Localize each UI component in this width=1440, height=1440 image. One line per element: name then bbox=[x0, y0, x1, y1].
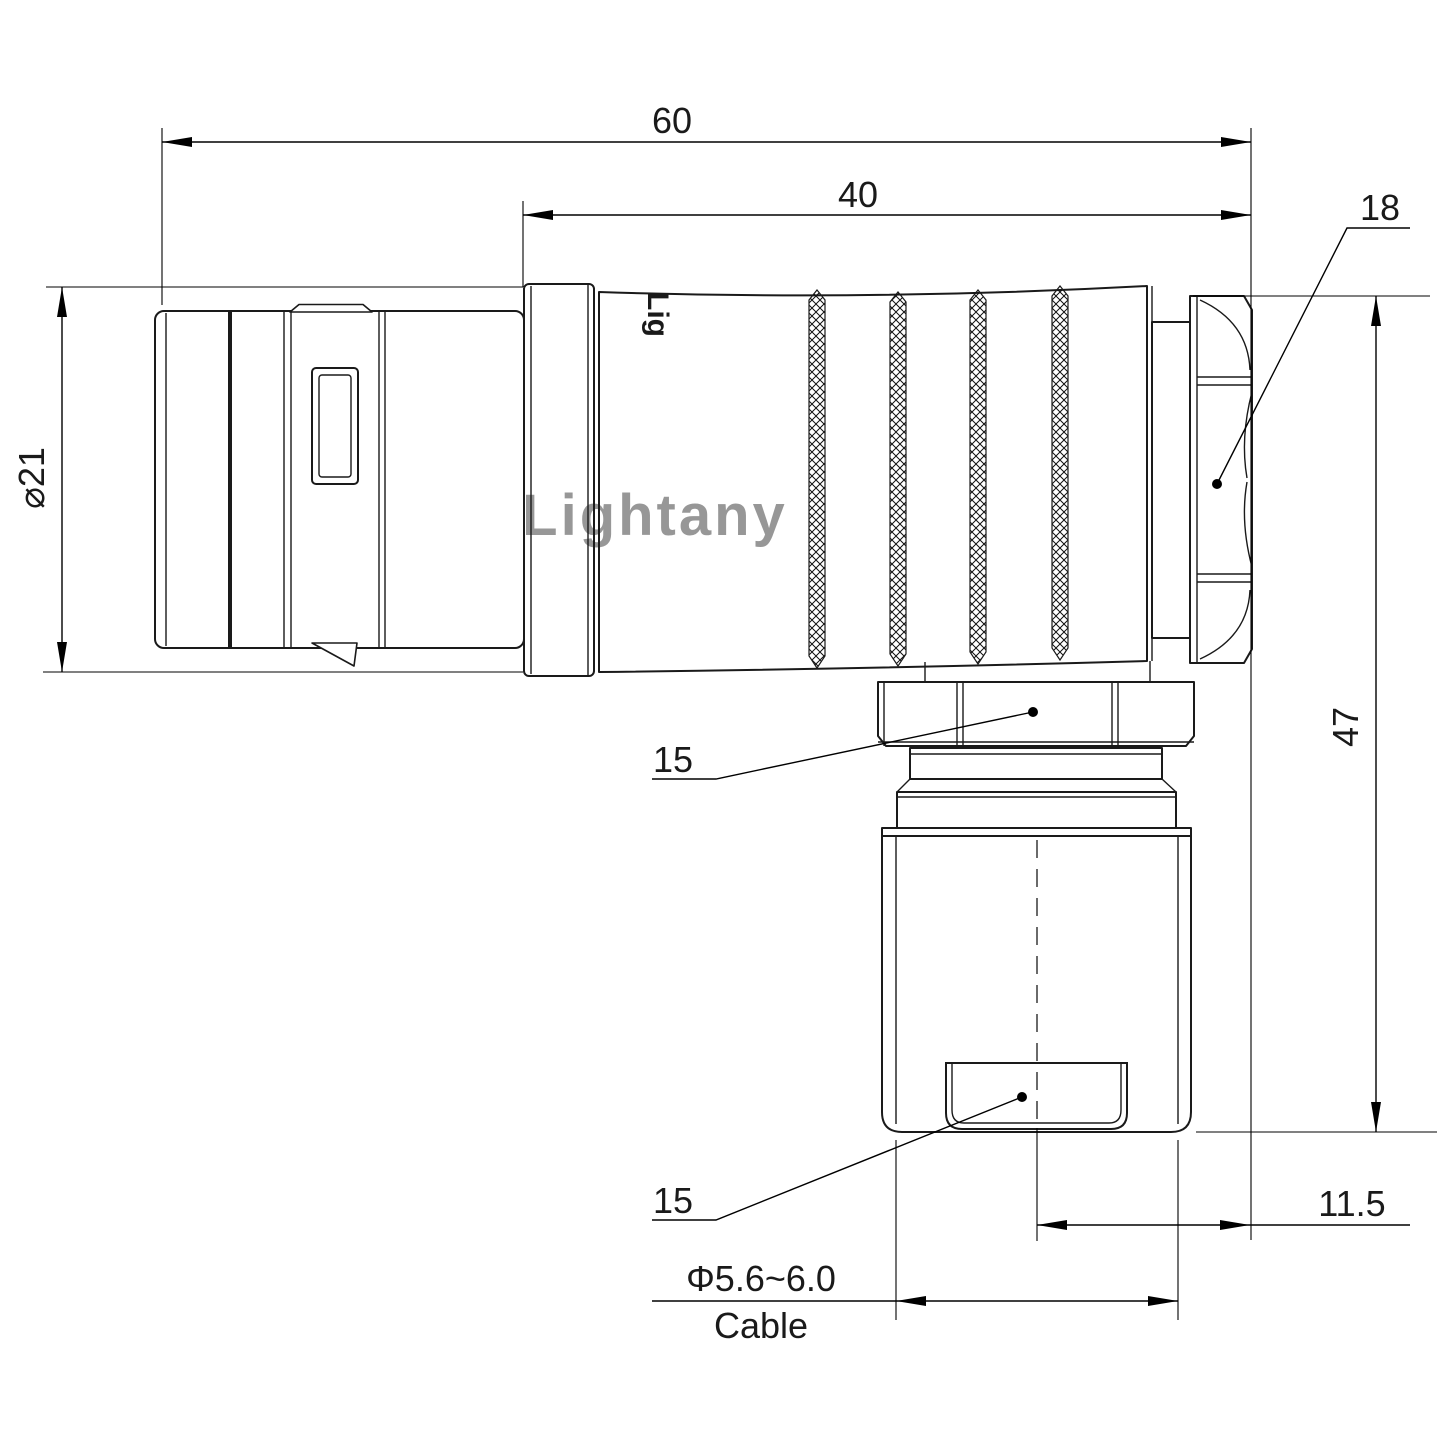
arrow-40-left bbox=[523, 210, 553, 220]
cable-tube bbox=[882, 836, 1191, 1132]
flare-edges bbox=[897, 779, 1176, 792]
connector-body: Lig bbox=[155, 284, 1252, 1132]
arrow-d21-bottom bbox=[57, 642, 67, 672]
arrow-115-right bbox=[1220, 1220, 1250, 1230]
neck bbox=[1152, 322, 1190, 638]
dimensions: 60 40 ⌀21 47 1 bbox=[11, 100, 1437, 1346]
dimension-rear-length: 40 bbox=[523, 174, 1251, 287]
knurl-band-2 bbox=[890, 292, 906, 666]
dim-60-label: 60 bbox=[652, 100, 692, 141]
dim-40-label: 40 bbox=[838, 174, 878, 215]
dim-cable-word-label: Cable bbox=[714, 1305, 808, 1346]
dim-d21-label: ⌀21 bbox=[11, 447, 52, 509]
grip-section: Lig bbox=[599, 286, 1152, 672]
front-shell bbox=[155, 305, 524, 667]
connector-technical-drawing: Lig bbox=[0, 0, 1440, 1440]
leader-15b-dot bbox=[1017, 1092, 1027, 1102]
watermark-text: Lightany bbox=[522, 483, 788, 548]
leader-18-dot bbox=[1212, 479, 1222, 489]
arrow-47-bottom bbox=[1371, 1102, 1381, 1132]
knurl-band-4 bbox=[1052, 286, 1068, 660]
arrow-40-right bbox=[1221, 210, 1251, 220]
dimension-cable: Φ5.6~6.0 Cable bbox=[652, 1140, 1178, 1346]
back-nut-outline bbox=[1190, 296, 1252, 663]
knurl-band-1 bbox=[809, 290, 825, 668]
leader-15a-dot bbox=[1028, 707, 1038, 717]
back-nut bbox=[1190, 296, 1252, 663]
knurl-band-3 bbox=[970, 290, 986, 664]
dim-15a-label: 15 bbox=[653, 739, 693, 780]
arrow-cable-right bbox=[1148, 1296, 1178, 1306]
arrow-60-left bbox=[162, 137, 192, 147]
ring-a bbox=[910, 748, 1162, 779]
tube-lip bbox=[882, 828, 1191, 836]
bottom-notch bbox=[312, 643, 357, 666]
coupling-ring bbox=[524, 284, 594, 676]
arrow-60-right bbox=[1221, 137, 1251, 147]
arrow-115-left bbox=[1037, 1220, 1067, 1230]
dim-cable-diameter-label: Φ5.6~6.0 bbox=[686, 1258, 836, 1299]
front-shell-outline bbox=[155, 311, 524, 648]
step-rings bbox=[882, 748, 1191, 836]
dim-47-label: 47 bbox=[1325, 707, 1366, 747]
dimension-cable-offset: 11.5 bbox=[1037, 1128, 1410, 1241]
drawing-canvas: Lig bbox=[0, 0, 1440, 1440]
part-logo-text: Lig bbox=[641, 292, 674, 337]
dim-15b-label: 15 bbox=[653, 1180, 693, 1221]
arrow-cable-left bbox=[896, 1296, 926, 1306]
latch-tab bbox=[290, 305, 372, 313]
dim-115-label: 11.5 bbox=[1318, 1183, 1385, 1224]
arrow-47-top bbox=[1371, 296, 1381, 326]
arrow-d21-top bbox=[57, 287, 67, 317]
dim-18-label: 18 bbox=[1360, 187, 1400, 228]
dimension-total-length: 60 bbox=[162, 100, 1251, 305]
